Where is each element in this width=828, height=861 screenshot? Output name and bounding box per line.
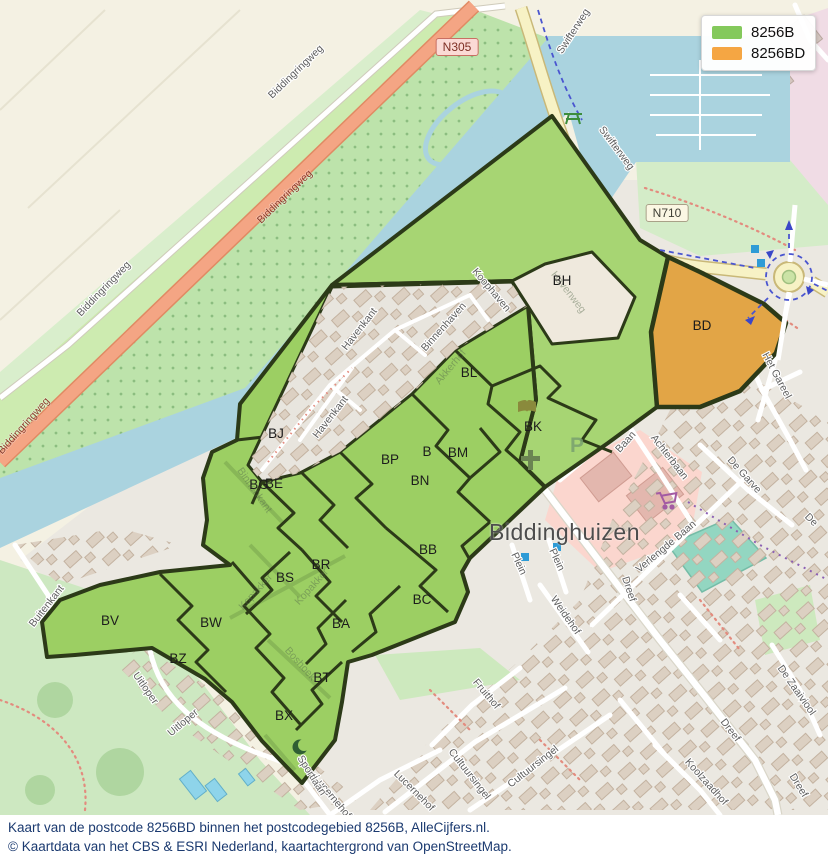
caption-line-2: © Kaartdata van het CBS & ESRI Nederland… <box>8 837 828 856</box>
area-label-bd: BD <box>693 318 712 333</box>
tree <box>37 682 73 718</box>
road-badge-n710: N710 <box>646 204 689 222</box>
area-label-bl: BL <box>461 365 478 380</box>
area-label-bt: BT <box>313 670 330 685</box>
area-label-bj: BJ <box>268 426 284 441</box>
area-label-bs: BS <box>276 570 294 585</box>
legend-label-8256bd: 8256BD <box>751 45 805 62</box>
area-label-bh: BH <box>553 273 572 288</box>
legend-row-8256bd: 8256BD <box>712 43 805 64</box>
caption-line-1: Kaart van de postcode 8256BD binnen het … <box>8 818 828 837</box>
map-canvas[interactable]: P SwifterwegSwifterwegBiddingringwegBidd… <box>0 0 828 815</box>
area-label-bn: BN <box>411 473 430 488</box>
map-legend: 8256B 8256BD <box>701 15 816 71</box>
area-label-ba: BA <box>332 616 350 631</box>
area-label-bc: BC <box>413 592 432 607</box>
road-badge-n305: N305 <box>436 38 479 56</box>
map-page: P SwifterwegSwifterwegBiddingringwegBidd… <box>0 0 828 861</box>
legend-row-8256b: 8256B <box>712 22 805 43</box>
legend-swatch-8256bd <box>712 47 742 60</box>
area-label-bx: BX <box>275 708 293 723</box>
area-label-bv: BV <box>101 613 119 628</box>
area-label-bw: BW <box>200 615 222 630</box>
legend-label-8256b: 8256B <box>751 24 794 41</box>
area-label-br: BR <box>312 557 331 572</box>
area-label-bz: BZ <box>169 651 186 666</box>
area-label-bk: BK <box>524 419 542 434</box>
area-label-bp: BP <box>381 452 399 467</box>
area-label-be: BE <box>265 476 283 491</box>
tree <box>25 775 55 805</box>
map-caption: Kaart van de postcode 8256BD binnen het … <box>0 815 828 861</box>
legend-swatch-8256b <box>712 26 742 39</box>
parking-icon: P <box>570 434 584 457</box>
area-label-b: B <box>422 444 431 459</box>
town-label: Biddinghuizen <box>489 519 640 546</box>
tree <box>96 748 144 796</box>
area-label-bb: BB <box>419 542 437 557</box>
area-label-bm: BM <box>448 445 468 460</box>
